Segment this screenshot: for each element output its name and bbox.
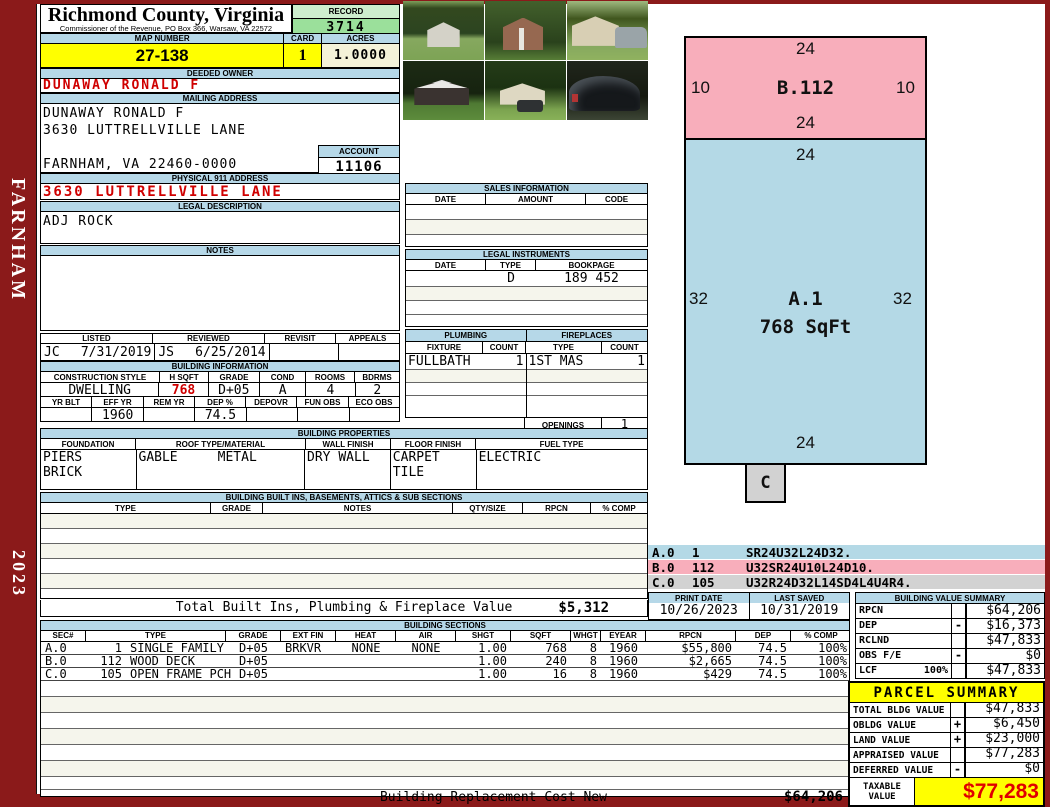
section-code: 112 [86, 656, 126, 667]
ps-label: DEFERRED VALUE [850, 763, 950, 777]
section-sec: B.0 [41, 656, 86, 667]
hsqft-value: 768 [159, 383, 208, 397]
floor-finish-value-1: CARPET [393, 450, 476, 465]
vs-label: DEP [859, 620, 877, 633]
sketch-b-top-dim: 24 [684, 39, 927, 59]
builtins-header-row: TYPE GRADE NOTES QTY/SIZE RPCN % COMP [40, 503, 648, 514]
vs-value: $47,833 [965, 664, 1044, 678]
hsqft-header: H SQFT [160, 372, 209, 382]
remyr-value [144, 408, 195, 422]
foundation-header: FOUNDATION [41, 439, 136, 449]
sales-date-header: DATE [406, 194, 486, 204]
empty-row [527, 383, 648, 396]
deeded-owner-box: DUNAWAY RONALD F [40, 79, 400, 93]
segment-sec: A.0 [648, 545, 692, 560]
vs-value: $0 [965, 649, 1044, 663]
heat-header: HEAT [336, 631, 396, 641]
builtin-notes-header: NOTES [263, 503, 453, 513]
card-label: CARD [284, 33, 322, 44]
building-info-title: BUILDING INFORMATION [40, 361, 400, 372]
builtins-title: BUILDING BUILT INS, BASEMENTS, ATTICS & … [40, 492, 648, 503]
empty-row [527, 396, 648, 408]
property-record-card: { "sidebar": { "district": "FARNHAM", "y… [0, 0, 1050, 800]
sales-header-row: DATE AMOUNT CODE [405, 194, 648, 205]
sketch-a-label: A.1 [684, 288, 927, 310]
section-extfin: BRKVR [281, 643, 336, 654]
fuel-type-value: ELECTRIC [477, 450, 648, 490]
value-summary-row: RPCN $64,206 [856, 604, 1044, 618]
ps-label: OBLDG VALUE [850, 718, 950, 732]
value-summary-row: OBS F/E - $0 [856, 648, 1044, 663]
segment-code: 112 [692, 560, 746, 575]
dep-header: DEP % [195, 397, 246, 407]
comp-header: % COMP [791, 631, 851, 641]
section-shgt: 1.00 [456, 656, 511, 667]
builtin-comp-header: % COMP [591, 503, 647, 513]
ps-value: $0 [964, 763, 1043, 777]
vs-value: $64,206 [965, 604, 1044, 618]
empty-row [527, 370, 648, 383]
vs-op [951, 634, 965, 648]
replacement-cost-label: Building Replacement Cost New [380, 790, 607, 805]
vs-label: RCLND [859, 635, 889, 648]
sections-footer-row: Building Replacement Cost New $64,206 [41, 790, 849, 806]
effyr-value: 1960 [92, 408, 144, 422]
empty-row [41, 681, 849, 697]
acres-value: 1.0000 [322, 44, 400, 68]
building-info-values1: DWELLING 768 D+05 A 4 2 [40, 383, 400, 397]
parcel-summary: PARCEL SUMMARY TOTAL BLDG VALUE $47,833 … [848, 681, 1045, 807]
sales-empty-rows [405, 205, 648, 247]
empty-row [406, 301, 647, 315]
section-comp: 100% [791, 669, 851, 680]
fireplaces-title: FIREPLACES [527, 329, 649, 342]
section-grade: D+05 [226, 643, 281, 654]
section-rpcn: $55,800 [646, 643, 736, 654]
fireplace-count-value: 1 [637, 354, 645, 369]
empty-row [41, 574, 647, 589]
segment-code: 1 [692, 545, 746, 560]
fixture-header: FIXTURE [406, 342, 483, 353]
ps-op: + [950, 733, 964, 747]
legal-description-box: ADJ ROCK [40, 212, 400, 244]
map-number-value: 27-138 [40, 44, 284, 68]
empty-row [406, 370, 526, 383]
instruments-rows: D 189 452 [405, 271, 648, 327]
deeded-owner-value: DUNAWAY RONALD F [41, 78, 200, 93]
replacement-cost-value: $64,206 [784, 790, 843, 805]
map-value-row: 27-138 1 1.0000 [40, 44, 400, 68]
instrument-bookpage: 189 452 [536, 271, 647, 286]
segment-sec: B.0 [648, 560, 692, 575]
fuel-type-header: FUEL TYPE [476, 439, 647, 449]
sections-body: A.0 1 SINGLE FAMILY D+05 BRKVR NONE NONE… [40, 642, 850, 797]
roof-material-value: METAL [218, 450, 257, 489]
print-date-value: 10/26/2023 [648, 603, 750, 620]
sales-info-title: SALES INFORMATION [405, 183, 648, 194]
building-info-header2: YR BLT EFF YR REM YR DEP % DEPOVR FUN OB… [40, 397, 400, 408]
appeals-value [339, 344, 400, 361]
section-whgt: 8 [571, 656, 601, 667]
bdrms-value: 2 [356, 383, 400, 397]
segment-path: U32SR24U10L24D10. [746, 560, 874, 575]
tax-year-label: 2023 [8, 550, 29, 598]
physical-address-box: 3630 LUTTRELLVILLE LANE [40, 184, 400, 200]
taxable-row: TAXABLE VALUE $77,283 [850, 777, 1043, 805]
ps-label: LAND VALUE [850, 733, 950, 747]
mailing-line: 3630 LUTTRELLVILLE LANE [43, 122, 397, 139]
value-summary-row: DEP - $16,373 [856, 618, 1044, 633]
last-saved-value: 10/31/2019 [750, 603, 851, 620]
empty-row [406, 396, 526, 408]
grade-header: GRADE [226, 631, 281, 641]
section-heat: NONE [336, 643, 396, 654]
revisit-header: REVISIT [265, 334, 336, 343]
section-eyear: 1960 [601, 669, 646, 680]
ps-op: - [950, 763, 964, 777]
section-grade: D+05 [226, 656, 281, 667]
fireplace-type-value: 1ST MAS [529, 354, 584, 369]
reviewed-header: REVIEWED [153, 334, 265, 343]
physical-address-value: 3630 LUTTRELLVILLE LANE [41, 184, 283, 200]
map-header-row: MAP NUMBER CARD ACRES [40, 33, 400, 44]
air-header: AIR [396, 631, 456, 641]
sales-code-header: CODE [586, 194, 647, 204]
empty-row [406, 235, 647, 248]
cond-header: COND [260, 372, 306, 382]
vs-op: - [951, 619, 965, 633]
physical-address-label: PHYSICAL 911 ADDRESS [40, 173, 400, 184]
ecoobs-value [350, 408, 400, 422]
sketch-segment-row[interactable]: C.0 105 U32R24D32L14SD4L4U4R4. [648, 575, 1045, 589]
remyr-header: REM YR [144, 397, 195, 407]
grade-header: GRADE [209, 372, 260, 382]
listed-initials: JC [44, 345, 60, 360]
sketch-c-label: C [760, 473, 770, 493]
ps-op [950, 703, 964, 717]
sketch-a-sqft-label: 768 SqFt [684, 316, 927, 338]
segment-path: SR24U32L24D32. [746, 545, 851, 560]
empty-row [41, 761, 849, 777]
section-sqft: 16 [511, 669, 571, 680]
builtin-grade-header: GRADE [211, 503, 263, 513]
builtins-total-value: $5,312 [558, 600, 609, 616]
section-sqft: 768 [511, 643, 571, 654]
instrument-bookpage-header: BOOKPAGE [536, 260, 647, 270]
segment-path: U32R24D32L14SD4L4U4R4. [746, 575, 912, 590]
empty-row [41, 514, 647, 529]
notes-label: NOTES [40, 245, 400, 256]
building-sections-title: BUILDING SECTIONS [40, 620, 850, 631]
section-rpcn: $429 [646, 669, 736, 680]
value-summary-row: RCLND $47,833 [856, 633, 1044, 648]
empty-row [41, 544, 647, 559]
rooms-value: 4 [306, 383, 355, 397]
district-label: FARNHAM [6, 178, 29, 302]
vs-pct: 100% [924, 665, 948, 678]
segment-code: 105 [692, 575, 746, 590]
plumbing-title: PLUMBING [405, 329, 527, 342]
floor-finish-header: FLOOR FINISH [391, 439, 476, 449]
vs-value: $47,833 [965, 634, 1044, 648]
sketch-b-right-dim: 10 [896, 78, 915, 98]
section-type: OPEN FRAME PCH [126, 669, 226, 680]
empty-row [41, 529, 647, 544]
sketch-segment-row[interactable]: A.0 1 SR24U32L24D32. [648, 545, 1045, 559]
property-photo-thumbnail[interactable] [403, 1, 484, 60]
taxable-label-line1: TAXABLE [863, 782, 901, 792]
print-saved-values: 10/26/2023 10/31/2019 [648, 603, 850, 620]
parcel-summary-row: TOTAL BLDG VALUE $47,833 [850, 702, 1043, 717]
section-sec: A.0 [41, 643, 86, 654]
fireplace-count-header: COUNT [602, 342, 647, 353]
building-info-header1: CONSTRUCTION STYLE H SQFT GRADE COND ROO… [40, 372, 400, 383]
ps-op [950, 748, 964, 762]
county-subtitle: Commissioner of the Revenue, PO Box 366,… [41, 25, 291, 33]
vs-value: $16,373 [965, 619, 1044, 633]
sketch-segment-row[interactable]: B.0 112 U32SR24U10L24D10. [648, 560, 1045, 574]
ps-op: + [950, 718, 964, 732]
property-photo-thumbnail[interactable] [485, 1, 566, 60]
instrument-date [406, 271, 486, 286]
empty-row [406, 220, 647, 235]
building-info-values2: 1960 74.5 [40, 408, 400, 422]
builtin-rpcn-header: RPCN [523, 503, 591, 513]
properties-values: PIERS BRICK GABLE METAL DRY WALL CARPET … [40, 450, 648, 490]
section-eyear: 1960 [601, 643, 646, 654]
instrument-type-header: TYPE [486, 260, 536, 270]
section-comp: 100% [791, 643, 851, 654]
parcel-summary-row: APPRAISED VALUE $77,283 [850, 747, 1043, 762]
vs-label: RPCN [859, 605, 883, 618]
wall-finish-value: DRY WALL [305, 450, 391, 490]
instruments-header-row: DATE TYPE BOOKPAGE [405, 260, 648, 271]
ecoobs-header: ECO OBS [349, 397, 399, 407]
listed-date: 7/31/2019 [81, 345, 151, 360]
whgt-header: WHGT [571, 631, 601, 641]
ps-label: TOTAL BLDG VALUE [850, 703, 950, 717]
sketch-b-label: B.112 [684, 77, 927, 99]
depovr-header: DEPOVR [246, 397, 297, 407]
county-title: Richmond County, Virginia [41, 5, 291, 25]
section-sec: C.0 [41, 669, 86, 680]
empty-row [41, 697, 849, 713]
ps-value: $23,000 [964, 733, 1043, 747]
cond-value: A [260, 383, 306, 397]
empty-row [406, 205, 647, 220]
section-dep: 74.5 [736, 643, 791, 654]
wall-finish-header: WALL FINISH [306, 439, 391, 449]
empty-row [406, 287, 647, 301]
roof-type-value: GABLE [139, 450, 178, 489]
mailing-address-label: MAILING ADDRESS [40, 93, 400, 104]
instrument-type: D [486, 271, 536, 286]
foundation-value-1: PIERS [43, 450, 136, 465]
section-shgt: 1.00 [456, 643, 511, 654]
section-eyear: 1960 [601, 656, 646, 667]
empty-row [406, 315, 647, 328]
section-row[interactable]: C.0 105 OPEN FRAME PCH D+05 1.00 16 8 19… [41, 668, 849, 681]
record-label: RECORD [292, 4, 400, 19]
section-code: 105 [86, 669, 126, 680]
bdrms-header: BDRMS [355, 372, 399, 382]
section-air: NONE [396, 643, 456, 654]
type-header: TYPE [86, 631, 226, 641]
section-dep: 74.5 [736, 656, 791, 667]
instrument-date-header: DATE [406, 260, 486, 270]
review-header-row: LISTED REVIEWED REVISIT APPEALS [40, 333, 400, 344]
section-dep: 74.5 [736, 669, 791, 680]
parcel-summary-row: OBLDG VALUE + $6,450 [850, 717, 1043, 732]
taxable-label-line2: VALUE [868, 792, 895, 802]
parcel-summary-row: DEFERRED VALUE - $0 [850, 762, 1043, 777]
listed-header: LISTED [41, 334, 153, 343]
empty-row [41, 729, 849, 745]
vs-label: LCF [859, 665, 877, 678]
section-whgt: 8 [571, 643, 601, 654]
ps-value: $6,450 [964, 718, 1043, 732]
section-shgt: 1.00 [456, 669, 511, 680]
revisit-value [270, 344, 339, 361]
mailing-line: DUNAWAY RONALD F [43, 105, 397, 122]
value-summary-row: LCF100% $47,833 [856, 663, 1044, 678]
rooms-header: ROOMS [306, 372, 355, 382]
acres-label: ACRES [322, 33, 400, 44]
builtins-total-label: Total Built Ins, Plumbing & Fireplace Va… [176, 600, 513, 616]
fixture-count-header: COUNT [483, 342, 526, 353]
builtins-empty-area [40, 514, 648, 599]
parcel-summary-title: PARCEL SUMMARY [850, 683, 1043, 702]
dep-header: DEP [736, 631, 791, 641]
effyr-header: EFF YR [92, 397, 144, 407]
map-number-label: MAP NUMBER [40, 33, 284, 44]
vs-op [951, 604, 965, 618]
yrblt-value [40, 408, 92, 422]
fixture-value: FULLBATH [408, 354, 471, 369]
sketch-section-c: C [745, 463, 786, 503]
empty-row [41, 745, 849, 761]
reviewed-date: 6/25/2014 [195, 345, 265, 360]
instrument-row: D 189 452 [406, 271, 647, 287]
construction-style-value: DWELLING [40, 383, 159, 397]
foundation-value-2: BRICK [43, 465, 136, 480]
building-properties-title: BUILDING PROPERTIES [40, 428, 648, 439]
sketch-b-bottom-dim: 24 [684, 113, 927, 133]
grade-value: D+05 [209, 383, 260, 397]
section-sqft: 240 [511, 656, 571, 667]
ps-value: $77,283 [964, 748, 1043, 762]
legal-description-value: ADJ ROCK [41, 214, 114, 229]
section-rpcn: $2,665 [646, 656, 736, 667]
section-grade: D+05 [226, 669, 281, 680]
section-whgt: 8 [571, 669, 601, 680]
builtin-type-header: TYPE [41, 503, 211, 513]
section-code: 1 [86, 643, 126, 654]
card-value: 1 [284, 44, 322, 68]
rpcn-header: RPCN [646, 631, 736, 641]
sidebar: FARNHAM 2023 [0, 0, 36, 800]
review-value-row: JC 7/31/2019 JS 6/25/2014 [40, 344, 400, 361]
property-photo-thumbnail[interactable] [485, 61, 566, 120]
vs-label: OBS F/E [859, 650, 901, 663]
reviewed-initials: JS [158, 345, 174, 360]
record-box: RECORD 3714 [292, 4, 400, 33]
builtin-qty-header: QTY/SIZE [453, 503, 523, 513]
yrblt-header: YR BLT [41, 397, 92, 407]
property-photo-thumbnail[interactable] [567, 61, 648, 120]
property-photo-thumbnail[interactable] [403, 61, 484, 120]
legal-instruments-title: LEGAL INSTRUMENTS [405, 249, 648, 260]
section-type: WOOD DECK [126, 656, 226, 667]
fireplace-type-header: TYPE [526, 342, 602, 353]
sqft-header: SQFT [511, 631, 571, 641]
properties-header-row: FOUNDATION ROOF TYPE/MATERIAL WALL FINIS… [40, 439, 648, 450]
segment-sec: C.0 [648, 575, 692, 590]
plumbing-fireplaces-panel: PLUMBING FIREPLACES FIXTURE COUNT TYPE C… [405, 329, 648, 433]
vs-op [951, 664, 965, 678]
photo-grid [403, 1, 649, 120]
appeals-header: APPEALS [336, 334, 399, 343]
building-value-summary: BUILDING VALUE SUMMARY RPCN $64,206 DEP … [855, 592, 1045, 679]
account-label: ACCOUNT [318, 145, 400, 158]
property-photo-thumbnail[interactable] [567, 1, 648, 60]
sales-amount-header: AMOUNT [486, 194, 586, 204]
legal-description-label: LEGAL DESCRIPTION [40, 201, 400, 212]
shgt-header: SHGT [456, 631, 511, 641]
eyear-header: EYEAR [601, 631, 646, 641]
builtins-total-row: Total Built Ins, Plumbing & Fireplace Va… [40, 600, 648, 617]
dep-value: 74.5 [195, 408, 246, 422]
funobs-header: FUN OBS [297, 397, 349, 407]
county-title-box: Richmond County, Virginia Commissioner o… [40, 4, 292, 33]
floor-finish-value-2: TILE [393, 465, 476, 480]
fixture-count-value: 1 [516, 354, 524, 369]
parcel-summary-row: LAND VALUE + $23,000 [850, 732, 1043, 747]
construction-style-header: CONSTRUCTION STYLE [41, 372, 160, 382]
section-comp: 100% [791, 656, 851, 667]
sketch-a-bottom-dim: 24 [684, 433, 927, 453]
empty-row [41, 777, 849, 790]
account-box: ACCOUNT 11106 [318, 145, 400, 176]
roof-header: ROOF TYPE/MATERIAL [136, 439, 306, 449]
depovr-value [247, 408, 298, 422]
empty-row [406, 383, 526, 396]
funobs-value [298, 408, 350, 422]
sketch-a-top-dim: 24 [684, 145, 927, 165]
sec-header: SEC# [41, 631, 86, 641]
ps-label: APPRAISED VALUE [850, 748, 950, 762]
empty-row [41, 559, 647, 574]
empty-row [41, 713, 849, 729]
notes-box [40, 256, 400, 331]
extfin-header: EXT FIN [281, 631, 336, 641]
vs-op: - [951, 649, 965, 663]
section-type: SINGLE FAMILY [126, 643, 226, 654]
ps-value: $47,833 [964, 703, 1043, 717]
sketch-a-right-dim: 32 [893, 289, 912, 309]
